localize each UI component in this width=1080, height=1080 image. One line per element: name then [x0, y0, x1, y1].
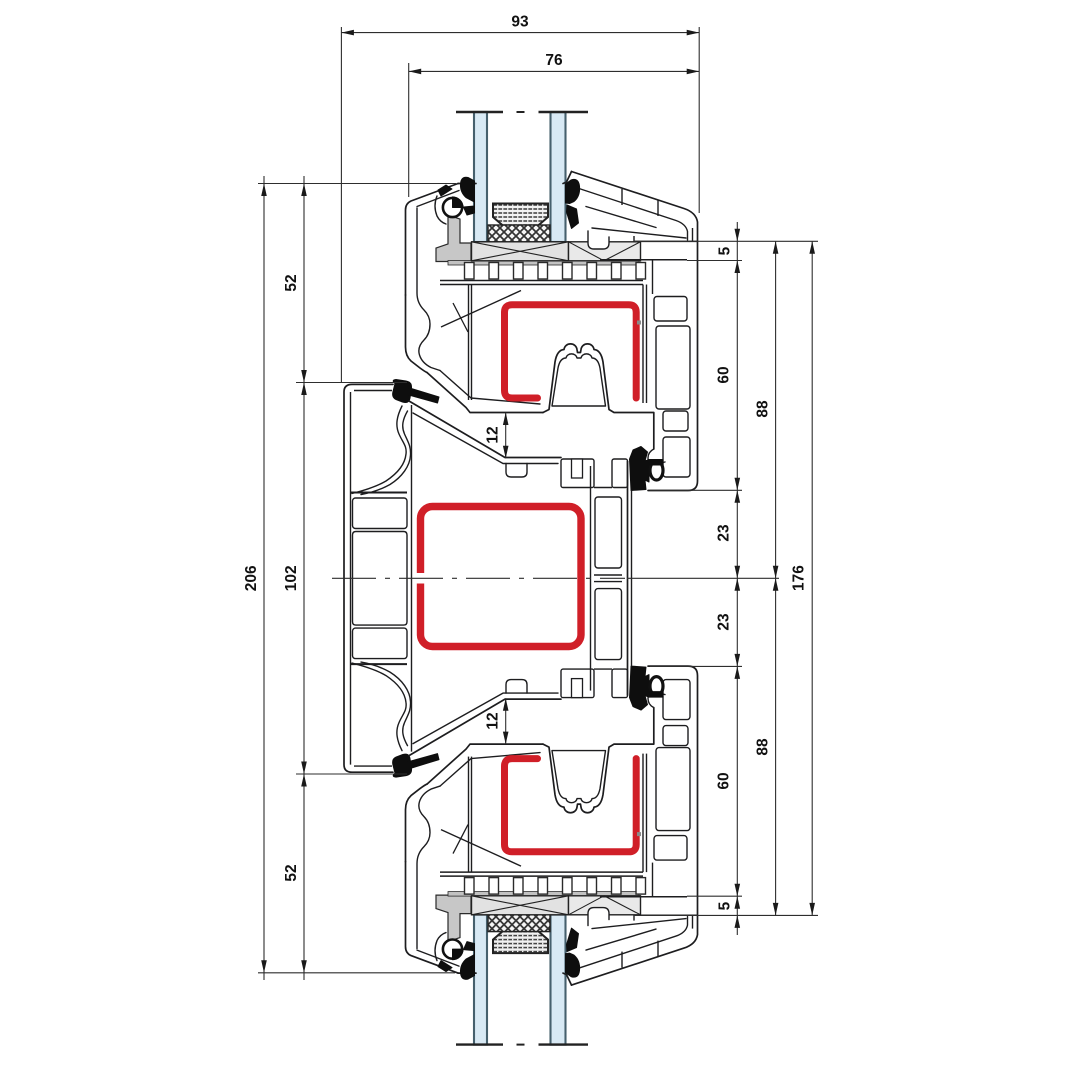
svg-text:102: 102 [283, 565, 300, 591]
svg-text:23: 23 [716, 524, 733, 542]
svg-text:93: 93 [511, 14, 529, 31]
svg-text:12: 12 [485, 712, 502, 729]
svg-text:52: 52 [283, 864, 300, 881]
svg-text:76: 76 [545, 52, 563, 69]
svg-text:60: 60 [716, 772, 733, 789]
svg-text:176: 176 [791, 565, 808, 591]
svg-text:88: 88 [755, 400, 772, 418]
svg-text:88: 88 [755, 738, 772, 756]
svg-text:12: 12 [485, 426, 502, 443]
svg-text:206: 206 [243, 565, 260, 591]
svg-text:60: 60 [716, 366, 733, 383]
svg-text:52: 52 [283, 274, 300, 291]
svg-text:5: 5 [717, 246, 734, 255]
svg-text:23: 23 [716, 613, 733, 631]
svg-text:5: 5 [717, 901, 734, 910]
